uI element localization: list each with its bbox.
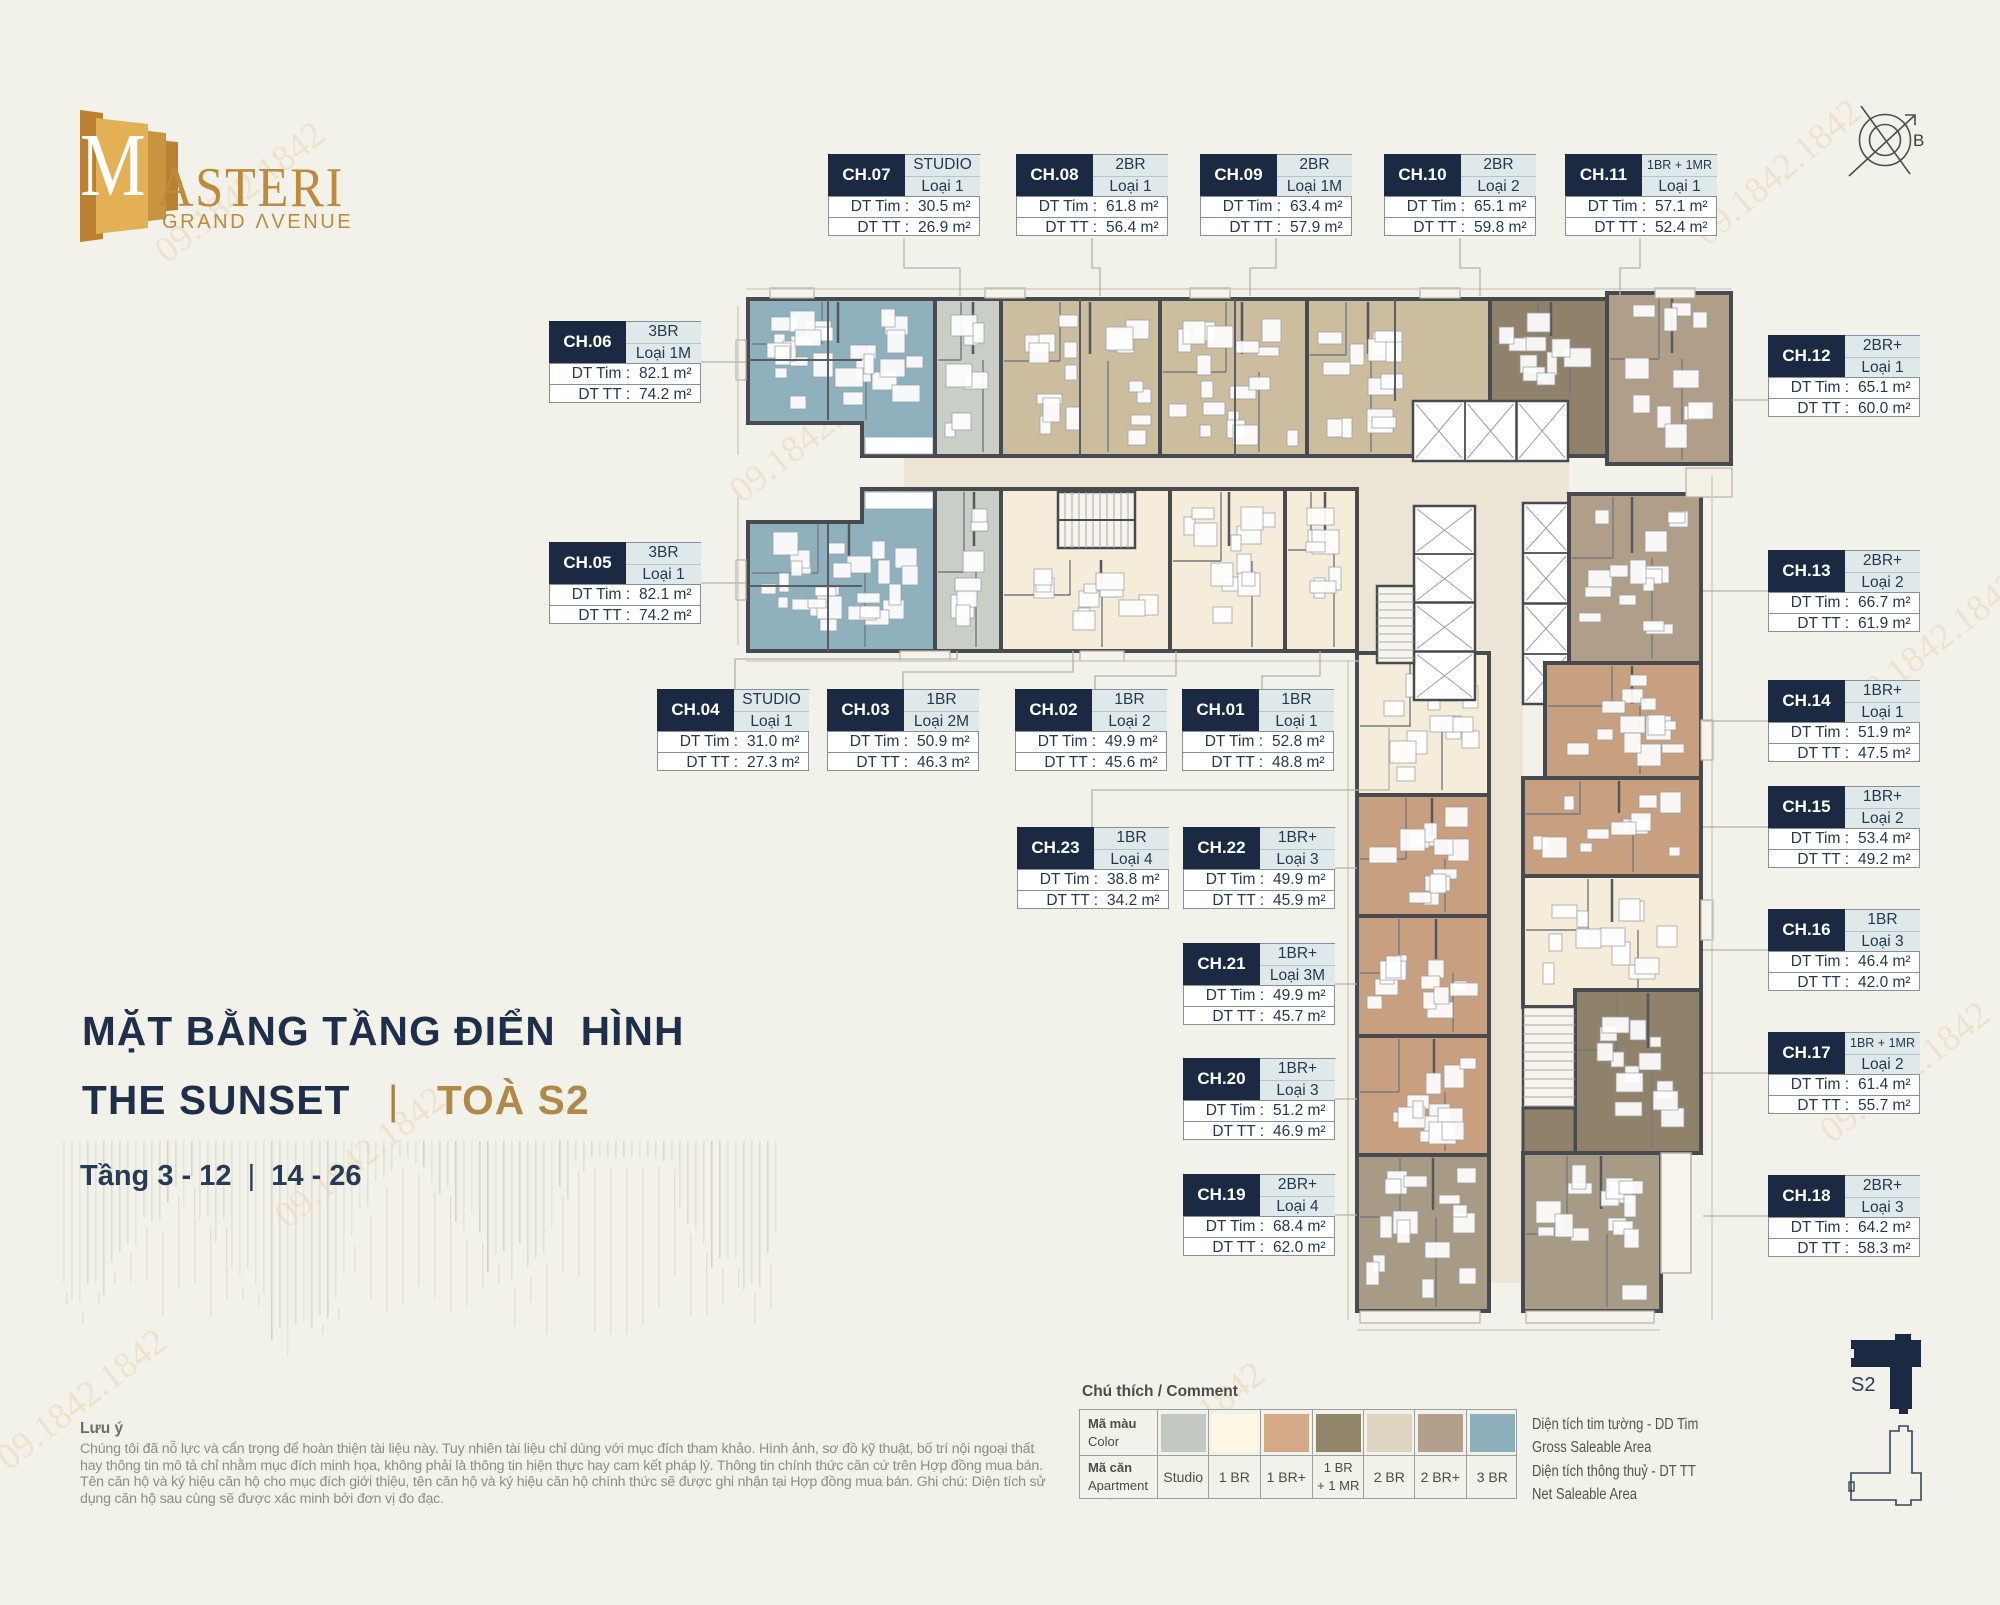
svg-text:B: B xyxy=(1913,131,1924,150)
svg-text:S2: S2 xyxy=(1851,1374,1875,1396)
